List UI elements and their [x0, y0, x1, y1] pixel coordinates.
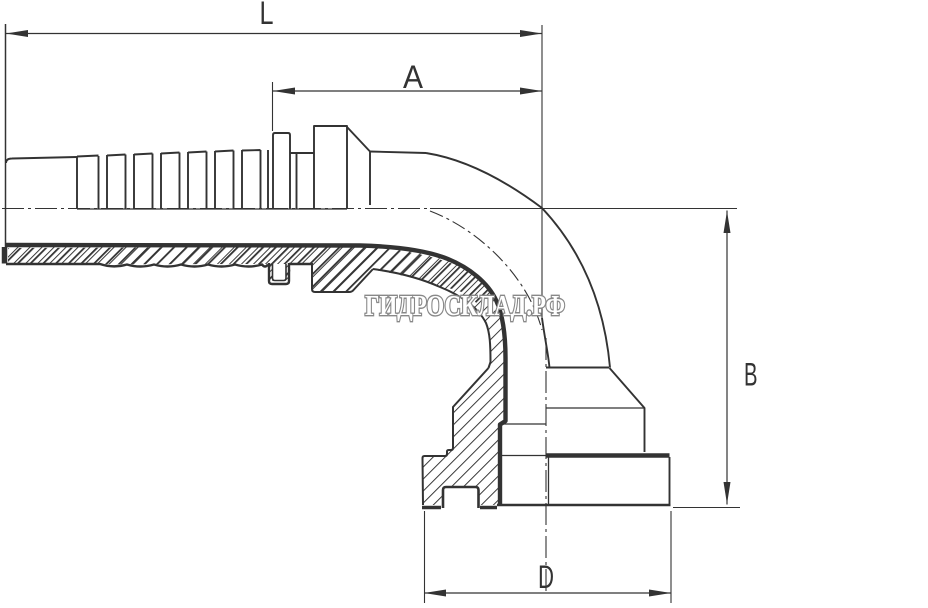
- svg-text:B: B: [744, 357, 758, 393]
- svg-text:D: D: [538, 559, 554, 595]
- svg-text:A: A: [403, 59, 424, 95]
- svg-text:ГИДРОСКЛАД.РФ: ГИДРОСКЛАД.РФ: [365, 290, 565, 322]
- svg-text:L: L: [260, 0, 274, 31]
